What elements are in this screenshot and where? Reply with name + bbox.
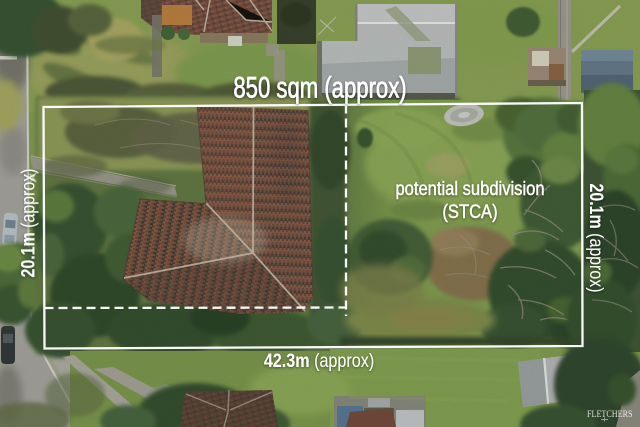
svg-text:(STCA): (STCA): [442, 201, 497, 223]
svg-text:potential subdivision: potential subdivision: [395, 178, 544, 200]
svg-text:20.1m (approx): 20.1m (approx): [586, 183, 608, 292]
svg-text:FLETCHERS: FLETCHERS: [587, 410, 633, 420]
svg-text:20.1m (approx): 20.1m (approx): [17, 168, 39, 277]
svg-text:850 sqm (approx): 850 sqm (approx): [233, 70, 406, 104]
svg-text:42.3m (approx): 42.3m (approx): [264, 350, 374, 372]
